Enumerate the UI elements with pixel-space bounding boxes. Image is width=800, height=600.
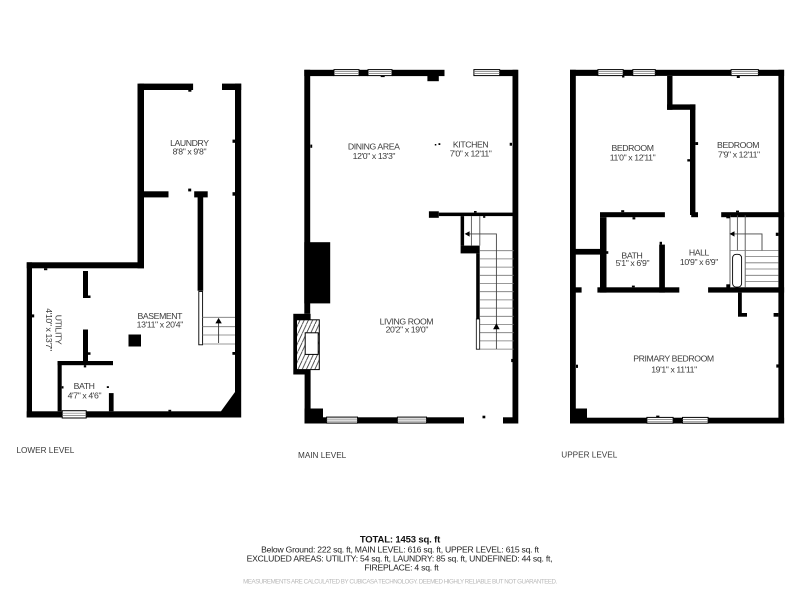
svg-text:7'9" x 12'11": 7'9" x 12'11"	[718, 150, 760, 160]
svg-text:UPPER LEVEL: UPPER LEVEL	[561, 450, 617, 459]
svg-text:LOWER LEVEL: LOWER LEVEL	[17, 446, 75, 455]
svg-text:FIREPLACE: 4 sq. ft: FIREPLACE: 4 sq. ft	[364, 563, 439, 573]
svg-text:5'1" x 6'9": 5'1" x 6'9"	[616, 258, 650, 268]
svg-text:MEASUREMENTS ARE CALCULATED BY: MEASUREMENTS ARE CALCULATED BY CUBICASA …	[243, 578, 557, 585]
svg-text:12'0" x 13'3": 12'0" x 13'3"	[353, 151, 396, 161]
svg-text:BEDROOM: BEDROOM	[717, 140, 759, 150]
svg-text:MAIN LEVEL: MAIN LEVEL	[298, 451, 347, 460]
svg-text:PRIMARY BEDROOM: PRIMARY BEDROOM	[633, 354, 714, 364]
svg-text:10'9" x 6'9": 10'9" x 6'9"	[680, 257, 718, 267]
svg-text:4'10" x 13'7": 4'10" x 13'7"	[44, 308, 54, 351]
svg-text:11'0" x 12'11": 11'0" x 12'11"	[610, 153, 656, 163]
svg-text:4'7" x 4'6": 4'7" x 4'6"	[68, 390, 102, 400]
svg-text:7'0" x 12'11": 7'0" x 12'11"	[450, 149, 492, 159]
svg-text:8'8" x 9'8": 8'8" x 9'8"	[173, 146, 207, 156]
svg-text:19'1" x 11'11": 19'1" x 11'11"	[651, 365, 697, 375]
svg-text:20'2" x 19'0": 20'2" x 19'0"	[386, 325, 429, 335]
svg-text:13'11" x 20'4": 13'11" x 20'4"	[137, 320, 184, 330]
svg-text:UTILITY: UTILITY	[54, 315, 64, 345]
